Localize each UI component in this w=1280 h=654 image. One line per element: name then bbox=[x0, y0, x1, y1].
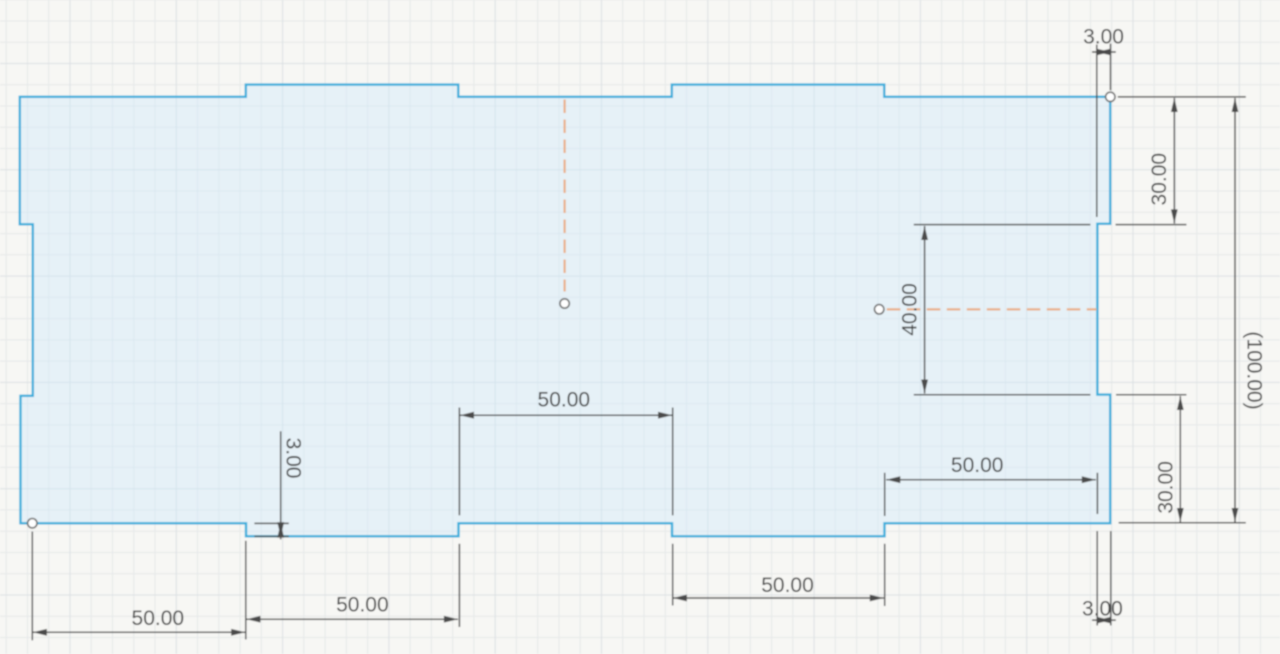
svg-text:3.00: 3.00 bbox=[282, 438, 305, 479]
svg-text:30.00: 30.00 bbox=[1154, 461, 1177, 514]
svg-text:50.00: 50.00 bbox=[951, 454, 1004, 477]
svg-text:50.00: 50.00 bbox=[132, 607, 185, 630]
svg-text:50.00: 50.00 bbox=[336, 593, 389, 616]
svg-text:50.00: 50.00 bbox=[538, 389, 591, 412]
svg-text:40.00: 40.00 bbox=[898, 283, 921, 336]
svg-text:50.00: 50.00 bbox=[761, 574, 814, 597]
svg-text:30.00: 30.00 bbox=[1148, 153, 1171, 206]
svg-text:3.00: 3.00 bbox=[1082, 598, 1123, 621]
svg-text:3.00: 3.00 bbox=[1083, 26, 1124, 49]
svg-text:(100.00): (100.00) bbox=[1243, 331, 1266, 409]
